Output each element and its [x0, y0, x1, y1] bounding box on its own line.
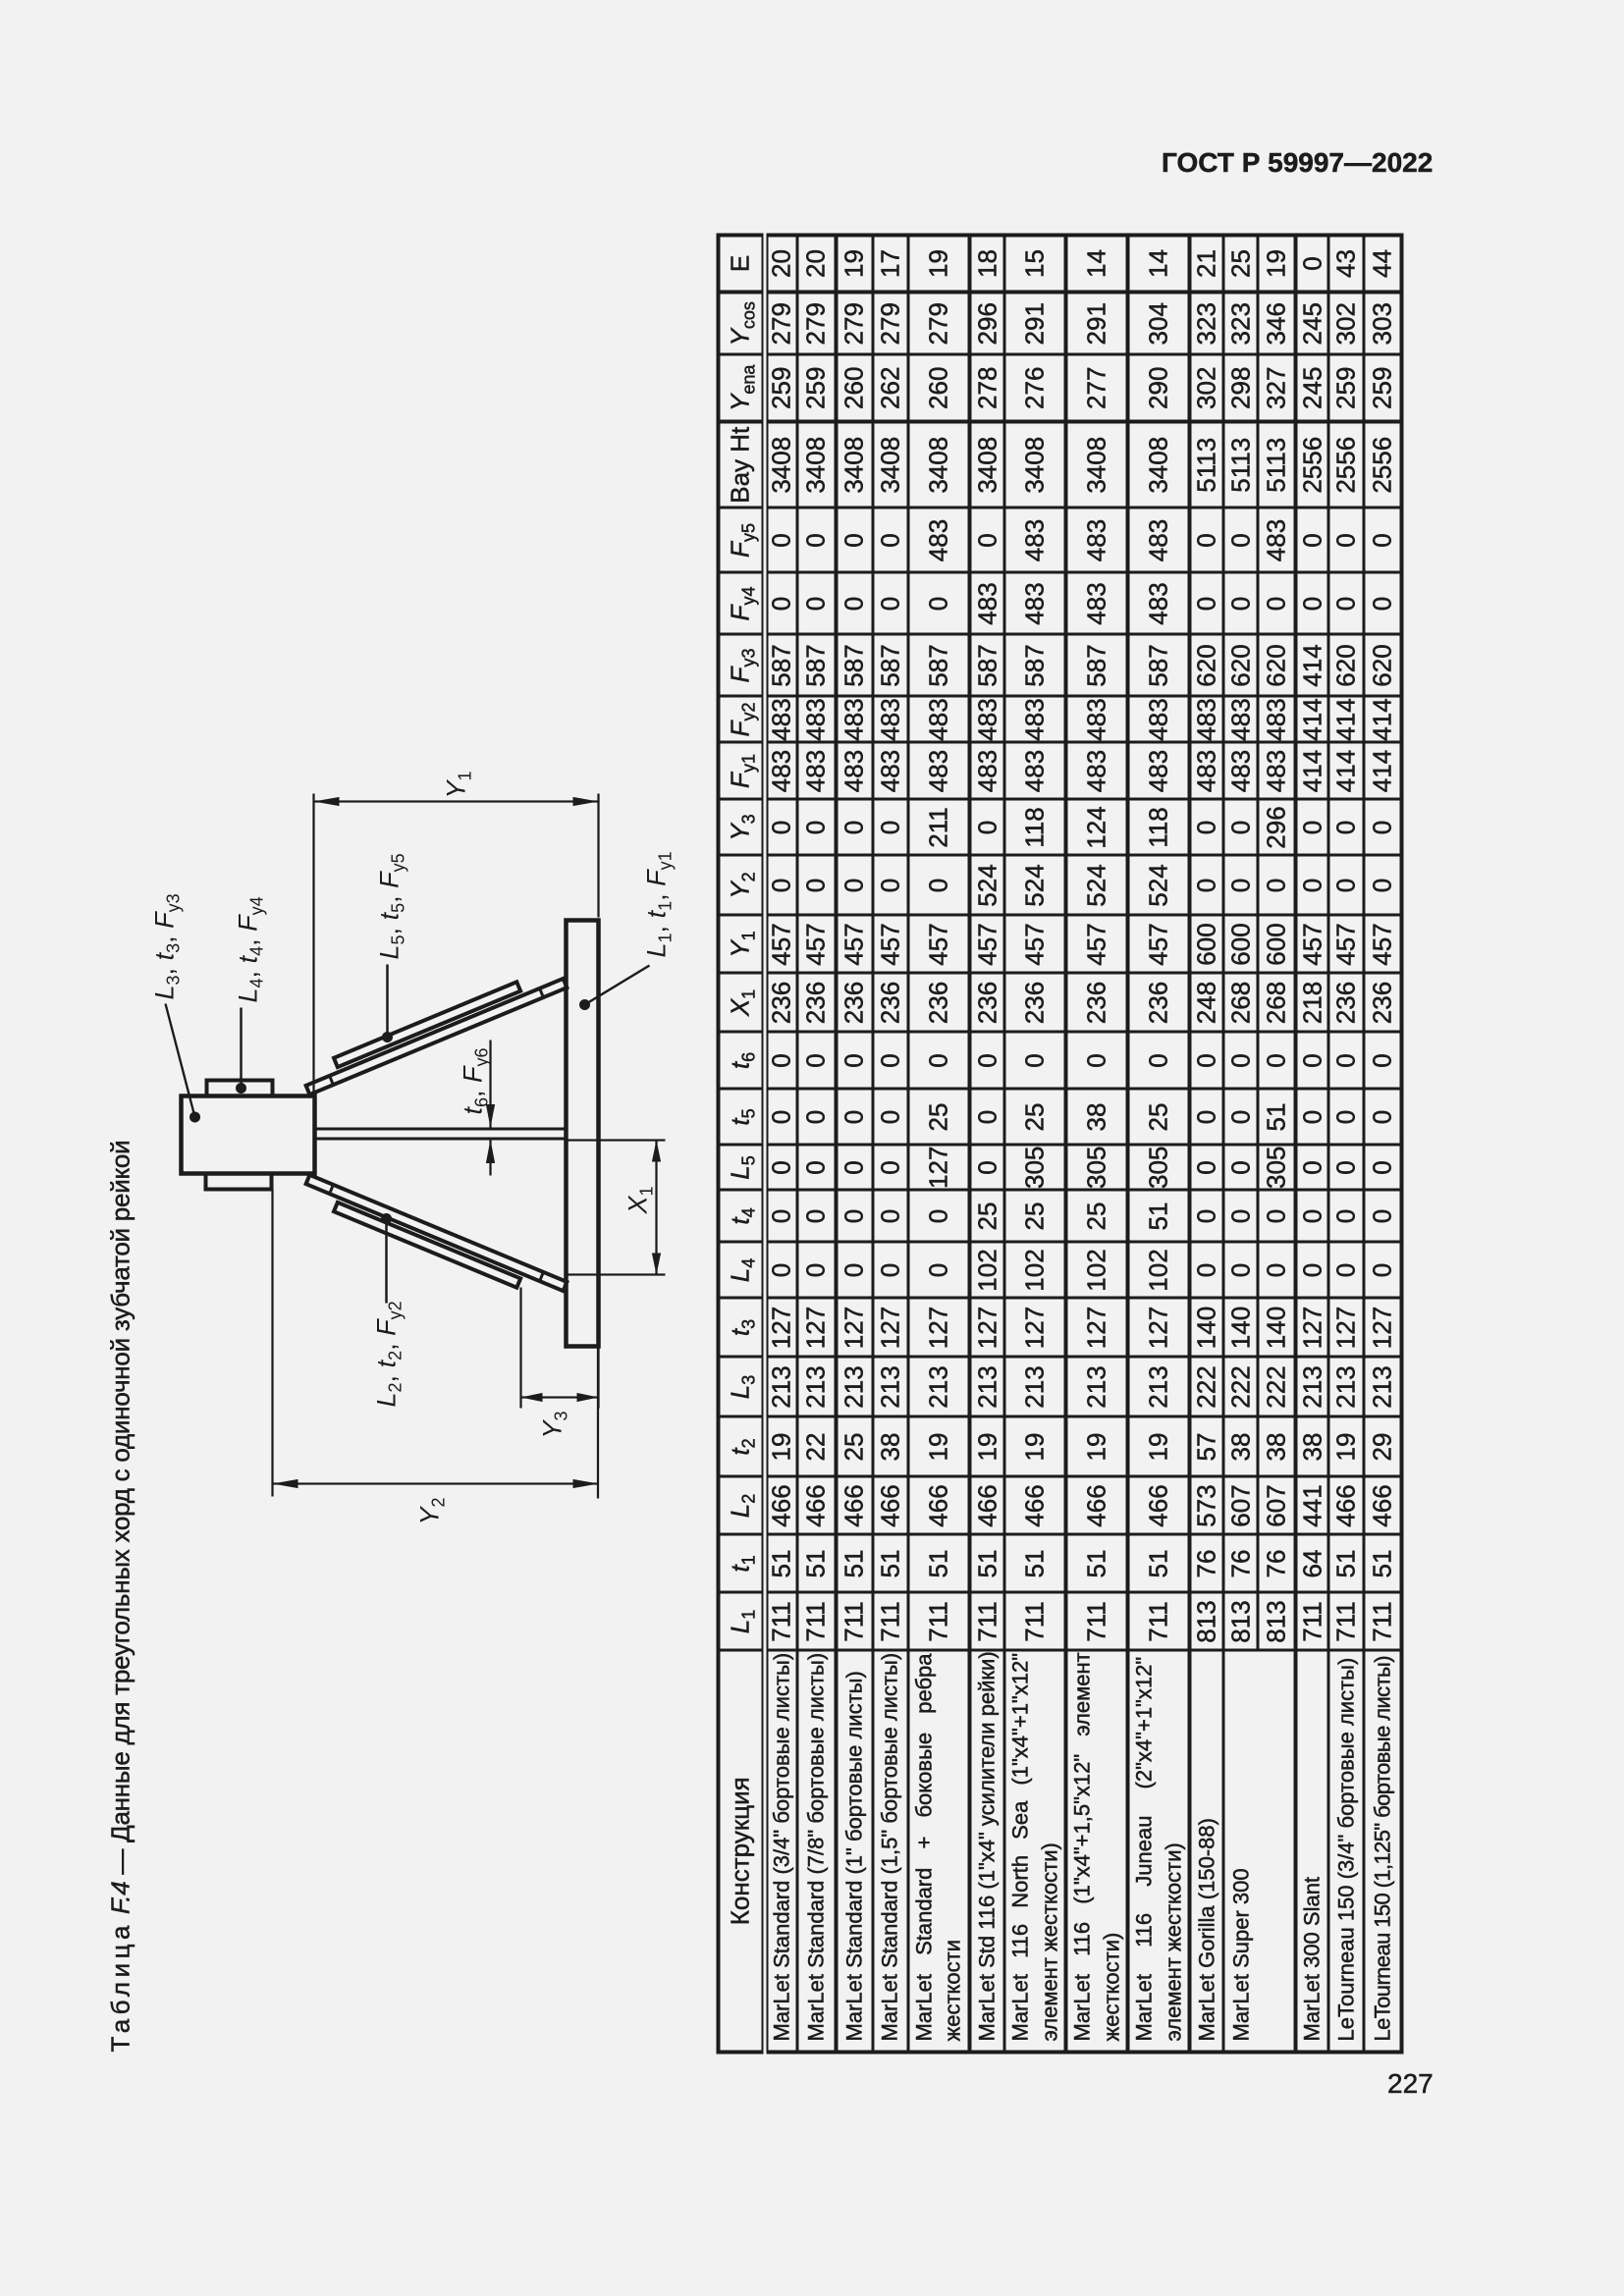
svg-text:Y2: Y2 — [414, 1497, 448, 1524]
svg-text:L1, t1, Fy1: L1, t1, Fy1 — [641, 851, 675, 957]
svg-text:X1: X1 — [623, 1186, 656, 1214]
svg-text:L2, t2, Fy2: L2, t2, Fy2 — [371, 1301, 405, 1407]
svg-text:L5, t5, Fy5: L5, t5, Fy5 — [374, 853, 407, 959]
svg-text:t6, Fy6: t6, Fy6 — [458, 1047, 491, 1114]
svg-text:Y1: Y1 — [441, 771, 474, 798]
svg-text:Y3: Y3 — [537, 1411, 570, 1438]
svg-text:L4, t4, Fy4: L4, t4, Fy4 — [233, 896, 266, 1002]
svg-text:L3, t3, Fy3: L3, t3, Fy3 — [149, 893, 183, 999]
